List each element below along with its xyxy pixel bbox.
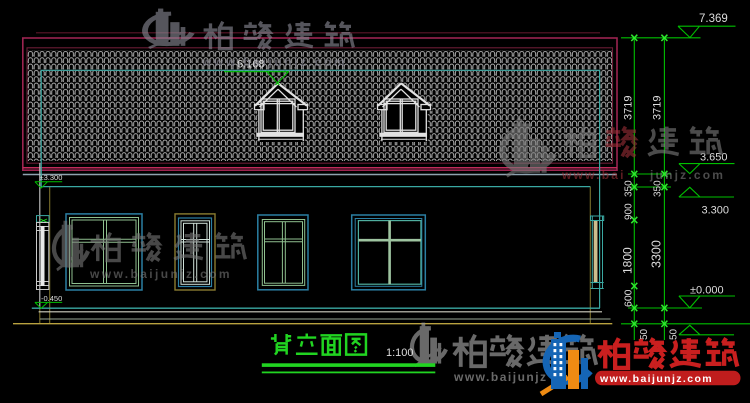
- svg-text:350: 350: [653, 180, 664, 197]
- svg-text:3.300: 3.300: [702, 205, 730, 217]
- svg-text:www.baijunjz: www.baijunjz: [453, 370, 548, 384]
- svg-text:1:100: 1:100: [386, 347, 414, 359]
- svg-text:-0.450: -0.450: [41, 294, 62, 303]
- svg-text:junjz.com: junjz.com: [649, 168, 725, 182]
- svg-text:1800: 1800: [621, 247, 635, 274]
- svg-text:350: 350: [624, 180, 635, 197]
- svg-text:±3.300: ±3.300: [40, 173, 63, 182]
- svg-text:3300: 3300: [650, 240, 664, 268]
- svg-text:900: 900: [624, 203, 635, 220]
- svg-text:50: 50: [669, 328, 680, 340]
- svg-text:±0.000: ±0.000: [690, 285, 724, 297]
- svg-text:3719: 3719: [623, 96, 635, 120]
- svg-text:3719: 3719: [652, 96, 664, 120]
- svg-text:600: 600: [623, 289, 635, 307]
- svg-text:7.369: 7.369: [699, 13, 728, 25]
- svg-text:www.baijunjz.com: www.baijunjz.com: [89, 267, 232, 281]
- svg-text:www.baijunjz.com: www.baijunjz.com: [599, 373, 713, 385]
- svg-text:50: 50: [639, 328, 650, 340]
- svg-text:www.baijunjz.com: www.baijunjz.com: [201, 55, 347, 69]
- svg-text:www.bai: www.bai: [561, 168, 626, 182]
